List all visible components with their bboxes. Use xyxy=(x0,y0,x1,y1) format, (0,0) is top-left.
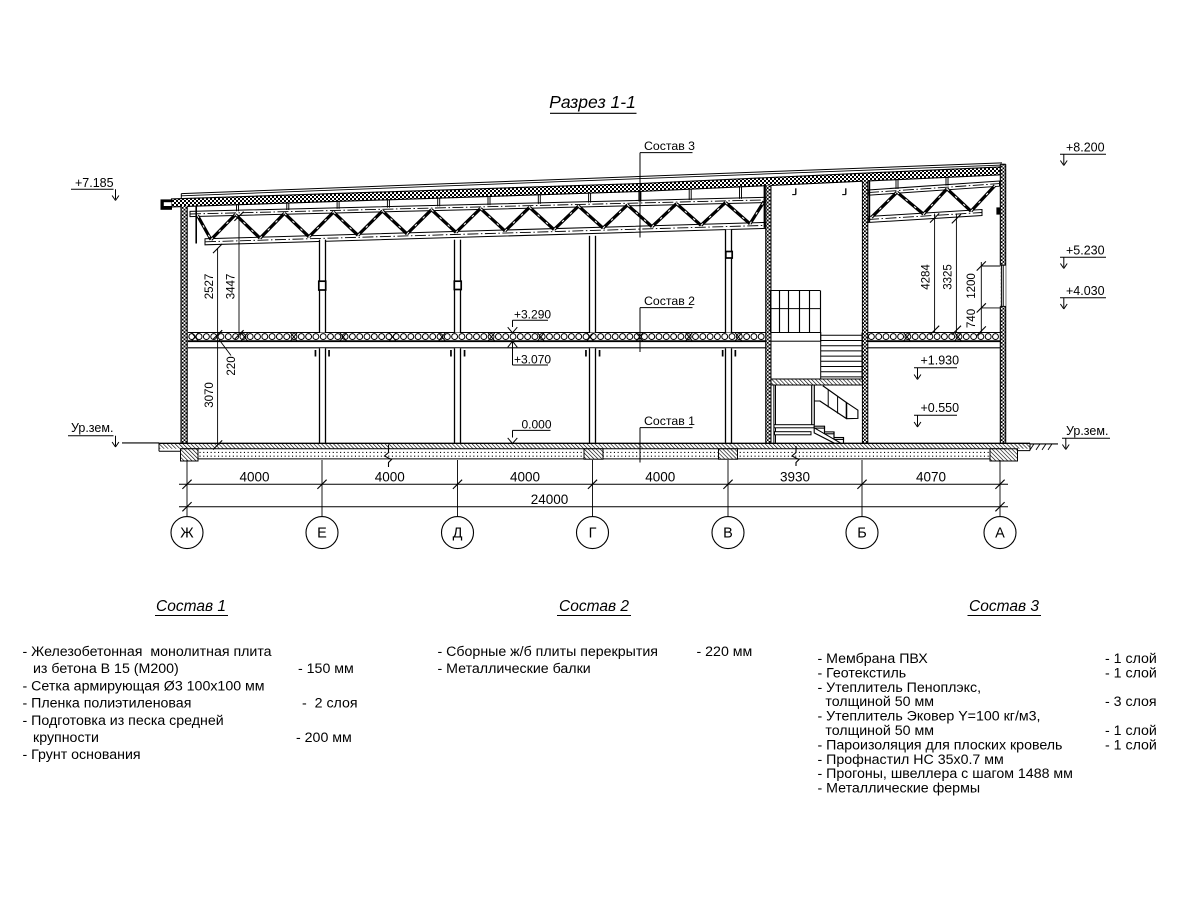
svg-text:Состав 1: Состав 1 xyxy=(644,414,695,428)
svg-text:Ур.зем.: Ур.зем. xyxy=(71,421,113,435)
svg-text:В: В xyxy=(723,526,733,542)
svg-text:+1.930: +1.930 xyxy=(921,354,960,368)
svg-text:- 200 мм: - 200 мм xyxy=(296,730,352,746)
svg-text:+7.185: +7.185 xyxy=(75,176,114,190)
svg-text:- 220 мм: - 220 мм xyxy=(697,644,753,660)
svg-text:4000: 4000 xyxy=(239,470,269,485)
svg-text:3447: 3447 xyxy=(226,274,238,300)
svg-text:1200: 1200 xyxy=(966,273,978,299)
svg-text:0.000: 0.000 xyxy=(522,418,552,432)
svg-text:3325: 3325 xyxy=(943,264,955,290)
svg-text:- Подготовка из песка средней: - Подготовка из песка средней xyxy=(23,713,224,729)
svg-text:+5.230: +5.230 xyxy=(1066,244,1105,258)
svg-text:Состав 2: Состав 2 xyxy=(644,294,695,308)
svg-text:- Пленка полиэтиленовая: - Пленка полиэтиленовая xyxy=(23,696,192,712)
svg-text:Состав 3: Состав 3 xyxy=(969,598,1039,615)
svg-text:- Металлические балки: - Металлические балки xyxy=(438,661,591,677)
svg-text:- Грунт основания: - Грунт основания xyxy=(23,747,141,763)
svg-text:Состав 2: Состав 2 xyxy=(559,598,629,615)
svg-text:- Железобетонная монолитная п: - Железобетонная монолитная плита xyxy=(23,644,272,660)
svg-text:- 2 слоя: - 2 слоя xyxy=(302,696,358,712)
svg-text:Ж: Ж xyxy=(180,526,194,542)
svg-text:220: 220 xyxy=(226,356,238,375)
svg-text:Е: Е xyxy=(317,526,327,542)
svg-text:+3.290: +3.290 xyxy=(514,308,551,322)
svg-text:24000: 24000 xyxy=(531,492,569,507)
svg-text:- Сборные ж/б плиты перекрытия: - Сборные ж/б плиты перекрытия xyxy=(438,644,658,660)
svg-text:- 1 слой: - 1 слой xyxy=(1105,737,1157,753)
svg-text:+3.070: +3.070 xyxy=(514,352,551,366)
svg-text:4070: 4070 xyxy=(916,470,946,485)
svg-text:Разрез 1-1: Разрез 1-1 xyxy=(549,92,636,112)
svg-text:+0.550: +0.550 xyxy=(921,401,960,415)
svg-text:из бетона В 15 (М200): из бетона В 15 (М200) xyxy=(33,661,179,677)
svg-text:3070: 3070 xyxy=(204,382,216,408)
svg-text:3930: 3930 xyxy=(780,470,810,485)
svg-text:4284: 4284 xyxy=(921,264,933,290)
svg-text:- Металлические фермы: - Металлические фермы xyxy=(818,781,981,797)
svg-text:2527: 2527 xyxy=(204,274,216,300)
svg-text:- 150 мм: - 150 мм xyxy=(298,661,354,677)
svg-text:4000: 4000 xyxy=(375,470,405,485)
svg-text:Д: Д xyxy=(453,526,463,542)
svg-text:- Сетка армирующая Ø3 100х100: - Сетка армирующая Ø3 100х100 мм xyxy=(23,678,265,694)
svg-text:- 3 слоя: - 3 слоя xyxy=(1105,694,1157,710)
svg-text:крупности: крупности xyxy=(33,730,99,746)
svg-text:+4.030: +4.030 xyxy=(1066,284,1105,298)
svg-text:А: А xyxy=(995,526,1005,542)
svg-text:4000: 4000 xyxy=(645,470,675,485)
svg-text:Г: Г xyxy=(589,526,597,542)
svg-text:4000: 4000 xyxy=(510,470,540,485)
svg-text:Состав 3: Состав 3 xyxy=(644,139,695,153)
svg-text:- 1 слой: - 1 слой xyxy=(1105,665,1157,681)
svg-text:Б: Б xyxy=(857,526,867,542)
svg-text:Ур.зем.: Ур.зем. xyxy=(1066,424,1108,438)
svg-text:+8.200: +8.200 xyxy=(1066,141,1105,155)
svg-text:Состав 1: Состав 1 xyxy=(156,598,226,615)
svg-text:740: 740 xyxy=(966,309,978,328)
